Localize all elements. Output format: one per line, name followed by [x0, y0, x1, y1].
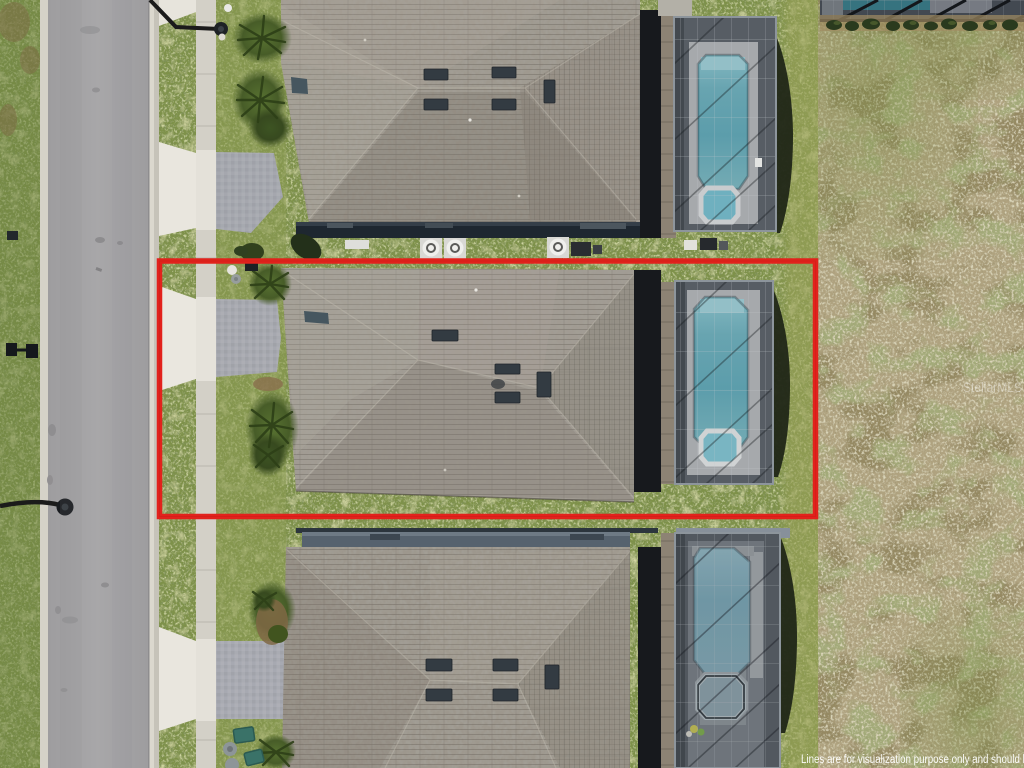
svg-text:StellarMLS: StellarMLS — [963, 380, 1022, 395]
svg-text:Lines are for visualization pu: Lines are for visualization purpose only… — [801, 754, 1024, 766]
